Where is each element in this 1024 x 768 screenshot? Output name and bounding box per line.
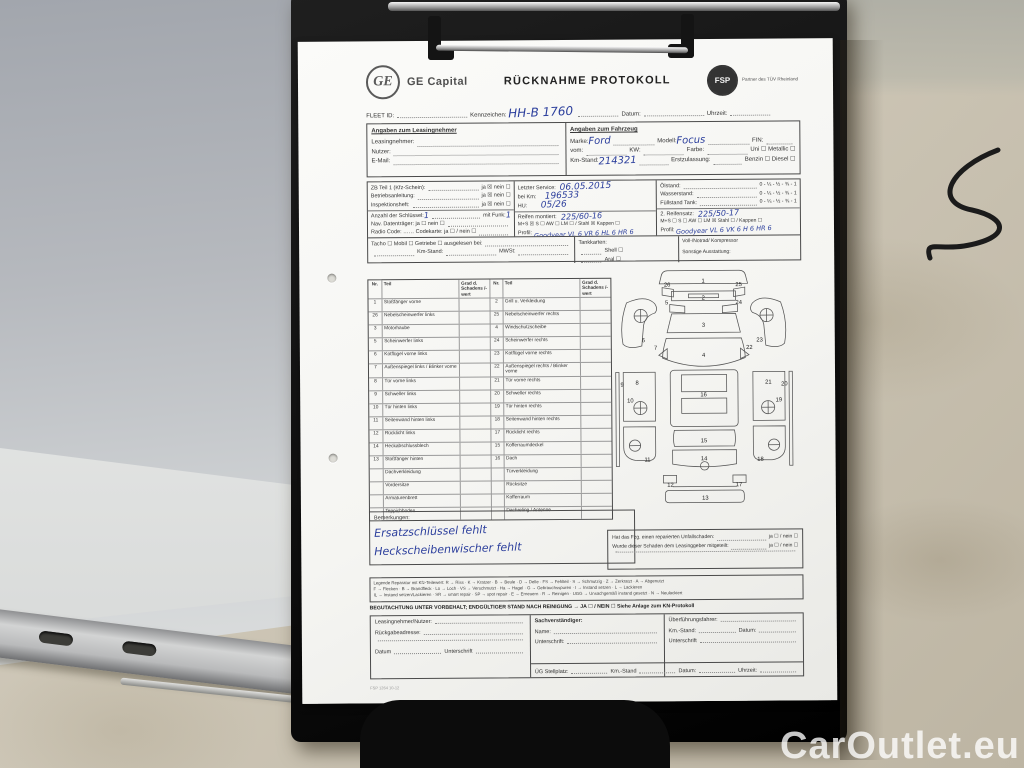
part-name: Heckabschlussblech (382, 443, 459, 456)
document-content: GE GE Capital RÜCKNAHME PROTOKOLL FSP Pa… (298, 38, 838, 704)
vehicle-heading: Angaben zum Fahrzeug (570, 124, 795, 135)
legend-box: Legende Reparatur mit Kfz-Teilewert: R →… (369, 574, 803, 602)
part-number: 5 (369, 338, 382, 350)
plate-handwritten-value: HH-B 1760 (508, 105, 573, 120)
part-name: Armaturenbrett (383, 495, 460, 508)
sig-driver-km-label: Km.-Stand: (669, 628, 697, 634)
signature-col-lessee: Leasingnehmer/Nutzer: Rückgabeadresse: D… (371, 615, 531, 678)
diagram-label: 8 (635, 381, 638, 387)
damage-grade-cell (580, 298, 611, 310)
part-number: 10 (369, 404, 382, 416)
fuelcards-cell: Tankkarten: Shell ☐Aral ☐Total ☐ (575, 236, 679, 263)
damage-grade-cell (459, 337, 490, 349)
part-name: Nebelscheinwerfer rechts (502, 311, 579, 324)
part-name: Seitenwand hinten links (382, 417, 459, 430)
set2-handwritten: 225/50-17 (698, 209, 740, 219)
watermark-text: CarOutlet.eu (780, 725, 1020, 768)
table-row: 11 Seitenwand hinten links 18 Seitenwand… (369, 415, 611, 430)
document-header: GE GE Capital RÜCKNAHME PROTOKOLL FSP Pa… (366, 58, 800, 103)
modell-handwritten: Focus (676, 136, 705, 147)
dark-object-foreground (360, 700, 670, 768)
diagram-label: 3 (702, 323, 705, 329)
diagram-label: 11 (644, 458, 650, 464)
uni-checkbox: Uni ☐ (750, 146, 766, 155)
part-name: Außenspiegel links / Blinker vorne (382, 364, 459, 378)
damage-grade-cell (459, 350, 490, 362)
accident-answer1: ja ☐ / nein ☐ (769, 532, 798, 541)
doc-item-label: ZB Teil 1 (Kfz-Schein): (371, 184, 426, 193)
sig-address-label: Rückgabeadresse: (375, 630, 421, 636)
part-name: Schweller links (382, 391, 459, 404)
part-name: Windschutzscheibe (503, 324, 580, 337)
diagram-label: 19 (776, 397, 783, 403)
sig-name-label: Name: (535, 629, 551, 635)
part-number: 17 (490, 429, 503, 441)
bracket-slot (38, 630, 73, 646)
profil2-label: Profil: (660, 226, 674, 234)
sig-expert-signature-label: Unterschrift: (535, 639, 565, 645)
damage-grade-cell (459, 363, 490, 376)
benzin-checkbox: Benzin ☐ (745, 156, 770, 165)
beikm-label: bei Km: (518, 193, 537, 201)
diagram-label: 6 (642, 338, 645, 344)
part-name: Tür vorne rechts (503, 377, 580, 390)
part-number: 16 (491, 455, 504, 467)
damage-grade-cell (580, 390, 611, 402)
part-name: Stoßfänger vorne (381, 299, 458, 312)
diagram-label: 14 (701, 456, 708, 462)
damage-grade-cell (581, 494, 612, 506)
table-row: 9 Schweller links 20 Schweller rechts (369, 389, 611, 404)
col-header: Teil (502, 279, 579, 297)
part-name: Scheinwerfer links (382, 338, 459, 351)
lessee-section: Angaben zum Leasingnehmer Leasingnehmer:… (367, 123, 566, 176)
fsp-logo-group: FSP Partner des TÜV Rheinland (707, 64, 800, 96)
set2-label: 2. Reifensatz: (660, 210, 694, 218)
doc-item-checkboxes: ja ☒ nein ☐ (482, 200, 511, 208)
sig-expert-heading: Sachverständiger: (535, 618, 583, 624)
part-name: Kotflügel vorne rechts (503, 350, 580, 363)
part-number (491, 494, 504, 506)
brand-name: GE Capital (407, 76, 468, 88)
part-number (491, 468, 504, 480)
part-name: Schweller rechts (503, 390, 580, 403)
documents-column: ZB Teil 1 (Kfz-Schein):ja ☒ nein ☐Betrie… (368, 181, 515, 237)
damage-grade-cell (459, 298, 490, 310)
fleet-id-label: FLEET ID: (366, 113, 394, 119)
table-row: Dachverkleidung Türverkleidung (370, 467, 612, 482)
damage-grade-cell (580, 311, 611, 323)
sig-parking-label: ÜG Stellplatz: (535, 669, 569, 675)
part-number: 24 (490, 337, 503, 349)
accident-answer2: ja ☐ / nein ☐ (769, 541, 798, 550)
diagram-label: 24 (735, 300, 742, 306)
part-number (370, 495, 383, 507)
table-row: 8 Tür vorne links 21 Tür vorne rechts (369, 376, 611, 391)
farbe-label: Farbe: (687, 146, 704, 155)
diagram-label: 5 (665, 301, 668, 307)
damage-grade-cell (459, 377, 490, 389)
modell-label: Modell: (657, 137, 676, 146)
table-row: 3 Motorhaube 4 Windschutzscheibe (369, 323, 611, 338)
diagram-label: 10 (627, 398, 634, 404)
part-name: Kofferraum (504, 494, 581, 507)
damage-grade-cell (460, 442, 491, 454)
table-row: 26 Nebelscheinwerfer links 25 Nebelschei… (369, 310, 611, 325)
damage-grade-cell (581, 429, 612, 441)
diagram-label: 22 (746, 345, 753, 351)
diagram-label: 18 (757, 457, 764, 463)
radio-label: Radio Code: …… Codekarte: ja ☐ / nein ☐ (371, 228, 476, 237)
damage-grade-cell (580, 377, 611, 389)
part-number: 1 (368, 299, 381, 311)
sig-signature-label: Unterschrift (444, 649, 472, 655)
part-number: 22 (490, 363, 503, 376)
damage-grade-cell (580, 337, 611, 349)
diagram-label: 2 (702, 296, 705, 302)
damage-grade-cell (581, 481, 612, 493)
part-name: Rücklicht rechts (503, 429, 580, 442)
lessee-heading: Angaben zum Leasingnehmer (371, 126, 561, 137)
diagram-label: 26 (664, 283, 671, 289)
sig-driver-signature-label: Unterschrift (669, 638, 697, 644)
damage-table: Nr. Teil Grad d. Schadens /-wert Nr. Tei… (367, 278, 613, 522)
part-name: Türverkleidung (504, 468, 581, 481)
sig-lessee-label: Leasingnehmer/Nutzer: (375, 619, 432, 625)
table-row: 5 Scheinwerfer links 24 Scheinwerfer rec… (369, 336, 611, 351)
damage-grade-cell (580, 403, 611, 415)
signature-bottom-row: ÜG Stellplatz: Km.-Stand Datum: Uhrzeit: (531, 661, 803, 677)
appraisal-line: BEGUTACHTUNG UNTER VORBEHALT; ENDGÜLTIGE… (370, 602, 804, 611)
km-handwritten: 214321 (598, 155, 637, 167)
remarks-box: Bemerkungen: Ersatzschlüssel fehltHecksc… (369, 510, 635, 566)
part-number: 15 (490, 442, 503, 454)
table-row: 13 Stoßfänger hinten 16 Dach (370, 454, 612, 469)
damage-grade-cell (460, 429, 491, 441)
photo-scene: GE GE Capital RÜCKNAHME PROTOKOLL FSP Pa… (0, 0, 1024, 768)
part-number: 23 (490, 350, 503, 362)
damage-grade-cell (459, 390, 490, 402)
part-number: 20 (490, 390, 503, 402)
diagram-label: 1 (701, 279, 704, 285)
bracket-slot (122, 641, 157, 657)
presence-mwst-label: MWSt: (499, 248, 516, 256)
part-number (491, 481, 504, 493)
col-header: Grad d. Schadens /-wert (580, 279, 611, 297)
legend-lines: Legende Reparatur mit Kfz-Teilewert: R →… (373, 577, 799, 597)
lessee-field-label: E-Mail: (372, 157, 391, 166)
part-number: 26 (369, 312, 382, 324)
damage-grade-cell (460, 455, 491, 467)
clip-grip-left (428, 16, 454, 60)
part-name: Außenspiegel rechts / Blinker vorne (503, 363, 580, 377)
part-number: 14 (369, 443, 382, 455)
col-header: Nr. (489, 279, 502, 297)
hu-label: HU: (518, 202, 528, 210)
diesel-checkbox: Diesel ☐ (772, 156, 796, 165)
part-name: Tür hinten links (382, 404, 459, 417)
protocol-sheet: GE GE Capital RÜCKNAHME PROTOKOLL FSP Pa… (298, 38, 838, 704)
damage-grade-cell (581, 442, 612, 454)
damage-grade-cell (580, 324, 611, 336)
fuelcard-item: Shell ☐ (604, 247, 623, 255)
diagram-label: 12 (667, 483, 674, 489)
col-header: Grad d. Schadens /-wert (459, 280, 490, 298)
time-label: Uhrzeit: (707, 111, 728, 117)
diagram-label: 16 (700, 392, 707, 398)
extra-label: Sonstige Ausstattung: (682, 248, 797, 256)
doc-checklist: ZB Teil 1 (Kfz-Schein):ja ☒ nein ☐Betrie… (371, 183, 511, 209)
id-line: FLEET ID: Kennzeichen: HH-B 1760 Datum: … (366, 104, 800, 119)
part-number: 8 (369, 378, 382, 390)
levels-column: Ölstand:0 - ¼ - ½ - ¾ - 1 Wasserstand:0 … (657, 179, 800, 235)
document-title: RÜCKNAHME PROTOKOLL (468, 74, 707, 88)
table-row: Armaturenbrett Kofferraum (370, 493, 612, 508)
part-name: Motorhaube (382, 325, 459, 338)
part-name: Seitenwand hinten rechts (503, 416, 580, 429)
part-number: 18 (490, 416, 503, 428)
part-name: Scheinwerfer rechts (503, 337, 580, 350)
diagram-label: 13 (702, 496, 709, 502)
funk-handwritten: 1 (506, 211, 511, 219)
damage-grade-cell (459, 324, 490, 336)
diagram-label: 7 (654, 346, 657, 352)
damage-grade-cell (460, 416, 491, 428)
clipboard-shadow (840, 40, 884, 760)
part-number (370, 469, 383, 481)
service-column: Letzter Service: 06.05.2015 bei Km: 1965… (515, 180, 658, 236)
oel-label: Ölstand: (660, 182, 681, 190)
plate-label: Kennzeichen: (470, 112, 506, 118)
keys-handwritten: 1 (424, 212, 429, 220)
sig-driver-date-label: Datum: (739, 627, 757, 633)
part-number: 6 (369, 351, 382, 363)
remark-line: Heckscheibenwischer fehlt (374, 542, 522, 558)
part-number: 4 (490, 324, 503, 336)
diagram-label: 23 (756, 337, 763, 343)
sig-km-label: Km.-Stand (611, 669, 637, 675)
table-row: 10 Tür hinten links 19 Tür hinten rechts (369, 402, 611, 417)
table-row: 1 Stoßfänger vorne 2 Grill u. Verkleidun… (368, 297, 610, 312)
clip-spine-bar (388, 2, 840, 11)
damage-grade-cell (580, 363, 611, 376)
accident-box: Hat das Fzg. einen reparierten Unfallsch… (607, 528, 803, 569)
damage-grade-cell (581, 416, 612, 428)
part-name: Grill u. Verkleidung (502, 298, 579, 311)
part-name: Dach (503, 455, 580, 468)
metallic-checkbox: Metallic ☐ (768, 146, 795, 155)
part-name: Kotflügel vorne links (382, 351, 459, 364)
damage-grade-cell (460, 468, 491, 480)
part-number: 7 (369, 364, 382, 377)
part-name: Dachverkleidung (383, 469, 460, 482)
table-row: Vordersitze Rücksitze (370, 480, 612, 495)
part-number: 3 (369, 325, 382, 337)
fsp-partner-text: Partner des TÜV Rheinland (742, 77, 800, 83)
form-code: FSP 1264 10-12 (370, 685, 399, 690)
diagram-label: 4 (702, 353, 706, 359)
damage-rows: 1 Stoßfänger vorne 2 Grill u. Verkleidun… (368, 297, 612, 521)
part-name: Vordersitze (383, 482, 460, 495)
damage-grade-cell (459, 403, 490, 415)
damage-grade-cell (581, 455, 612, 467)
remarks-handwriting: Ersatzschlüssel fehltHeckscheibenwischer… (374, 521, 630, 559)
diagram-label: 20 (781, 381, 788, 387)
part-name: Tür vorne links (382, 378, 459, 391)
col-header: Teil (381, 280, 458, 298)
oel-scale: 0 - ¼ - ½ - ¾ - 1 (759, 182, 796, 190)
fin-label: FIN: (752, 137, 763, 146)
damage-grade-cell (581, 468, 612, 480)
lessee-fields: Leasingnehmer:Nutzer:E-Mail: (371, 137, 561, 166)
damage-grade-cell (460, 481, 491, 493)
marke-label: Marke: (570, 138, 588, 147)
hu-handwritten: 05/26 (541, 201, 567, 211)
wasser-scale: 0 - ¼ - ½ - ¾ - 1 (760, 190, 797, 198)
table-row: 7 Außenspiegel links / Blinker vorne 22 … (369, 362, 611, 378)
part-number: 25 (490, 311, 503, 323)
remark-line: Ersatzschlüssel fehlt (374, 524, 487, 539)
profil-label: Profil: (518, 229, 532, 236)
col-header: Nr. (368, 280, 381, 298)
doc-item-label: Betriebsanleitung: (371, 192, 415, 201)
presence-km-label: Km-Stand: (417, 248, 443, 256)
condition-box: ZB Teil 1 (Kfz-Schein):ja ☒ nein ☐Betrie… (367, 178, 802, 263)
tyres-label: Reifen montiert: (518, 213, 557, 222)
table-row: 6 Kotflügel vorne links 23 Kotflügel vor… (369, 349, 611, 364)
damage-header-row: Nr. Teil Grad d. Schadens /-wert Nr. Tei… (368, 279, 610, 299)
sig-driver-label: Überführungsfahrer: (668, 617, 717, 623)
car-damage-diagram: 1 26 25 2 5 24 3 6 23 7 22 4 8 21 9 20 1 (609, 260, 799, 509)
part-name: Tür hinten rechts (503, 403, 580, 416)
part-number: 12 (369, 430, 382, 442)
black-cord (880, 140, 1020, 280)
part-number: 9 (369, 391, 382, 403)
table-row: 14 Heckabschlussblech 15 Kofferraumdecke… (369, 441, 611, 456)
lessee-field-label: Leasingnehmer: (371, 138, 414, 148)
profil2-handwritten: Goodyear VL 6 VK 6 H 6 HR 6 (676, 225, 772, 235)
damage-grade-cell (459, 311, 490, 323)
date-label: Datum: (621, 111, 640, 117)
sig-date-label: Datum (375, 649, 391, 655)
part-number: 11 (369, 417, 382, 429)
sig-time-label: Uhrzeit: (738, 668, 757, 674)
part-number: 21 (490, 377, 503, 389)
lessee-vehicle-box: Angaben zum Leasingnehmer Leasingnehmer:… (366, 120, 800, 177)
doc-item-checkboxes: ja ☒ nein ☐ (481, 183, 510, 191)
damage-grade-cell (580, 350, 611, 362)
diagram-label: 21 (765, 380, 772, 386)
damage-grade-cell (460, 494, 491, 506)
part-number: 2 (489, 298, 502, 310)
tyres-options: M+S ☒ S ☐ AW ☐ LM ☐ / Stahl ☒ Kappen ☐ (518, 221, 620, 229)
part-name: Nebelscheinwerfer links (381, 312, 458, 325)
funk-label: mit Funk: (483, 211, 506, 219)
signature-box: Leasingnehmer/Nutzer: Rückgabeadresse: D… (370, 612, 804, 679)
vehicle-section: Angaben zum Fahrzeug Marke: Ford Modell:… (566, 121, 800, 175)
spare-cell: Voll-/Notrad/ Kompressor Sonstige Aussta… (679, 235, 800, 262)
car-schematic-icon: 1 26 25 2 5 24 3 6 23 7 22 4 8 21 9 20 1 (609, 260, 799, 509)
profil-handwritten: Goodyear VL 6 VR 6 HL 6 HR 6 (534, 228, 634, 236)
part-name: Stoßfänger hinten (382, 456, 459, 469)
ge-logo-icon: GE (366, 65, 400, 99)
fsp-logo-icon: FSP (707, 64, 738, 95)
table-row: 12 Rücklicht links 17 Rücklicht rechts (369, 428, 611, 443)
diagram-label: 25 (735, 282, 742, 288)
part-number (370, 482, 383, 494)
ez-label: Erstzulassung: (671, 156, 710, 166)
part-name: Rücklicht links (382, 430, 459, 443)
doc-item-checkboxes: ja ☒ nein ☐ (481, 192, 510, 200)
doc-item-label: Inspektionsheft: (371, 201, 410, 210)
presence-cell: Tacho ☐ Mobil ☐ Getriebe ☐ ausgelesen be… (368, 237, 576, 264)
part-number: 19 (490, 403, 503, 415)
lessee-field-label: Nutzer: (371, 148, 390, 157)
sig-bottom-date-label: Datum: (678, 668, 696, 674)
diagram-label: 15 (701, 438, 708, 444)
km-label: Km-Stand: (570, 157, 598, 166)
marke-handwritten: Ford (588, 137, 611, 148)
spare-label: Voll-/Notrad/ Kompressor (682, 237, 797, 245)
vom-label: vom: (570, 147, 583, 156)
part-name: Kofferraumdeckel (503, 442, 580, 455)
tank-scale: 0 - ¼ - ½ - ¾ - 1 (760, 198, 797, 206)
wasser-label: Wasserstand: (660, 190, 693, 198)
part-number: 13 (370, 456, 383, 468)
diagram-label: 9 (620, 383, 623, 389)
diagram-label: 17 (736, 482, 743, 488)
tank-label: Füllstand Tank: (660, 199, 697, 208)
part-name: Rücksitze (504, 481, 581, 494)
fuelcards-heading: Tankkarten: (578, 239, 606, 247)
